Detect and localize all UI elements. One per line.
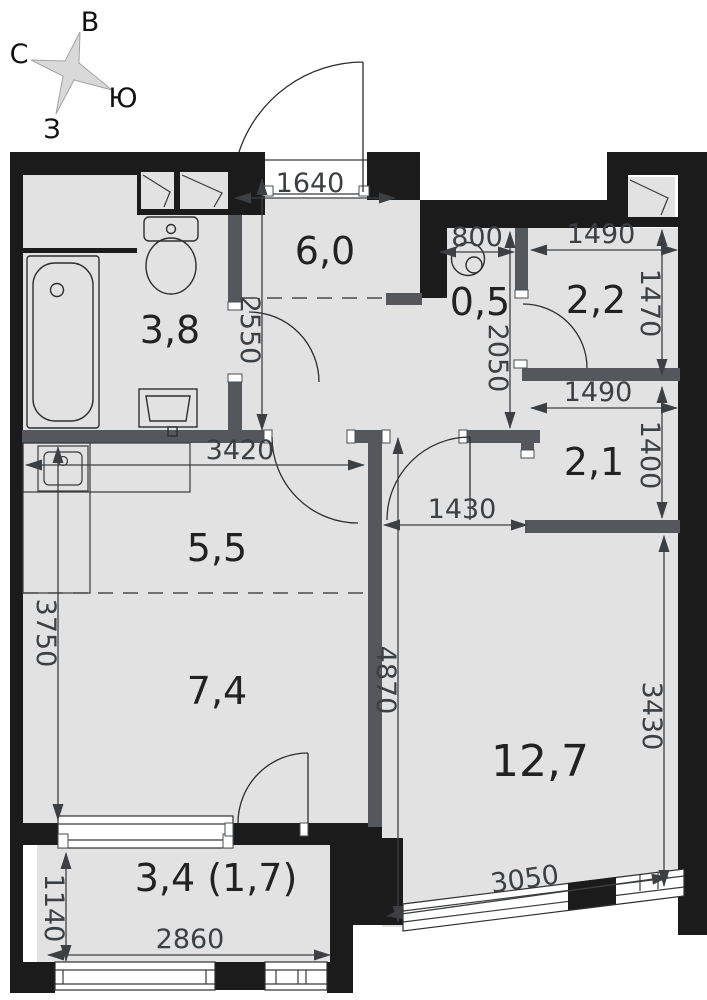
compass-south: Ю [108,83,137,114]
floor-plan-drawing: 1640 800 1490 1470 1490 1400 2550 2050 [0,0,707,1000]
dim-text: 1490 [564,377,633,408]
room-label-corridor: 5,5 [187,526,247,570]
dim-text: 1470 [634,269,665,338]
dim-text: 3420 [206,435,275,466]
dim-text: 1400 [634,421,665,490]
compass-rose: В С Ю З [10,7,138,145]
dim-text: 2860 [156,924,225,955]
dim-text: 2550 [234,296,265,365]
floor-plan-page: 1640 800 1490 1470 1490 1400 2550 2050 [0,0,707,1000]
room-label-hall: 6,0 [295,229,355,273]
compass-east: В [81,7,100,38]
room-label-balcony: 3,4 (1,7) [135,856,298,900]
dim-text: 1490 [567,219,636,250]
room-label-storage-top: 2,2 [566,278,626,322]
dim-text: 4870 [370,646,401,715]
dim-text: 3430 [636,682,667,751]
dim-text: 1430 [428,494,497,525]
dim-text: 1640 [276,168,345,199]
dim-text: 1140 [38,874,69,943]
balcony-window-right [265,962,327,990]
dim-text: 3750 [30,599,61,668]
room-label-living: 12,7 [491,736,589,787]
compass-north: С [10,39,29,70]
room-label-bathroom: 3,8 [140,308,200,352]
dim-text: 2050 [482,324,513,393]
room-label-storage-bottom: 2,1 [564,440,624,484]
left-block-floor [23,198,420,825]
room-label-laundry: 0,5 [450,280,510,324]
dim-text: 800 [451,222,503,253]
compass-west: З [43,114,60,145]
balcony-window-left [55,962,215,990]
kitchen-window [58,816,233,848]
compass-star-icon [31,32,112,114]
room-label-kitchen: 7,4 [187,669,247,713]
hall-top-floor [367,198,420,228]
